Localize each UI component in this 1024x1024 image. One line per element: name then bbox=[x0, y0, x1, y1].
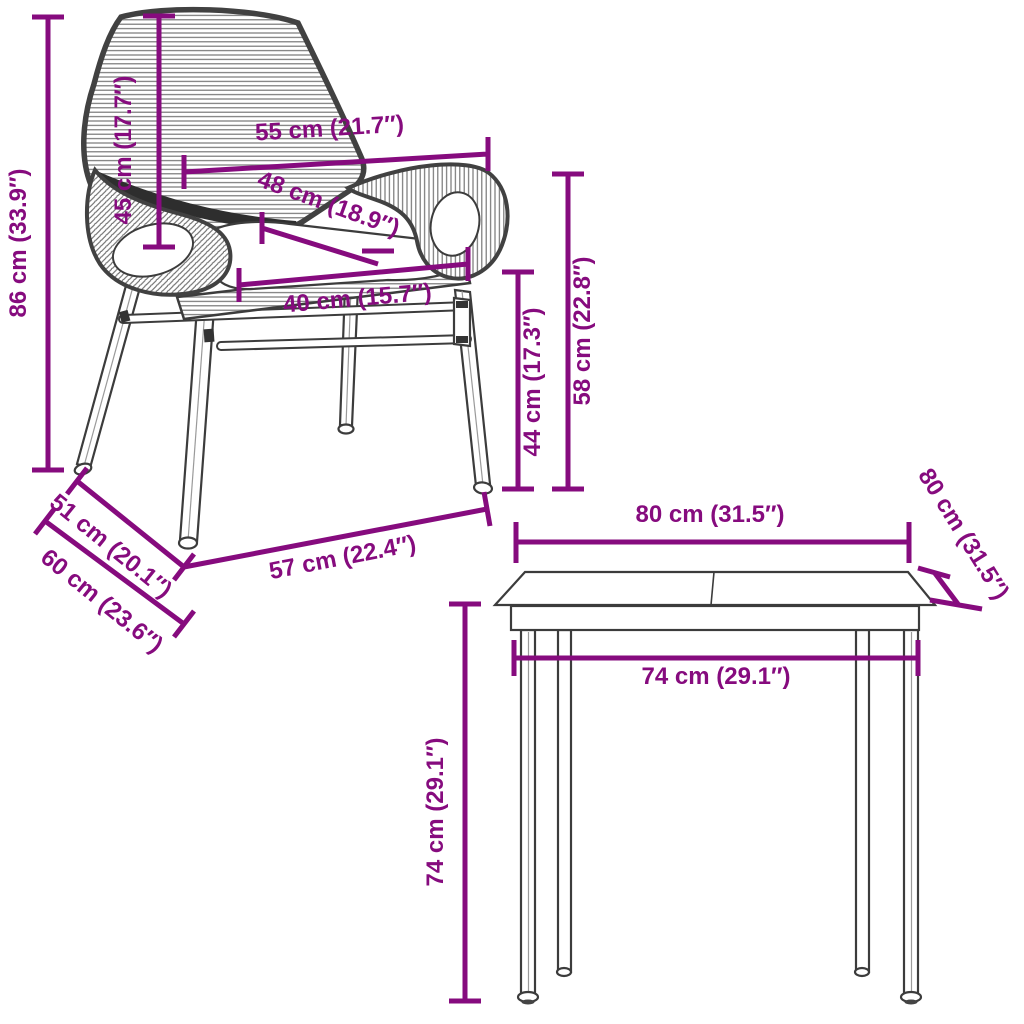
dim-chair-armrest-height-label: 58 cm (22.8″) bbox=[569, 257, 596, 406]
dim-chair-armrest-height: 58 cm (22.8″) bbox=[552, 174, 596, 489]
chair-foot bbox=[339, 425, 354, 434]
dim-table-top-width-label: 80 cm (31.5″) bbox=[636, 501, 785, 528]
dim-chair-total-height: 86 cm (33.9″) bbox=[5, 17, 64, 470]
furniture-dimension-diagram: 86 cm (33.9″) 45 cm (17.7″) 55 cm (21.7″… bbox=[0, 0, 1024, 1024]
dim-table-top-depth-label: 80 cm (31.5″) bbox=[912, 464, 1014, 605]
table-apron bbox=[511, 606, 919, 630]
dim-table-height-label: 74 cm (29.1″) bbox=[422, 738, 449, 887]
table-leg-back-right bbox=[856, 630, 869, 972]
table-drawing bbox=[495, 572, 935, 1005]
dim-chair-backrest-height-label: 45 cm (17.7″) bbox=[110, 76, 137, 225]
dim-chair-seat-height-label: 44 cm (17.3″) bbox=[519, 308, 546, 457]
table-foot bbox=[855, 968, 869, 976]
table-leg-back-left bbox=[558, 630, 571, 972]
chair-foot bbox=[179, 538, 197, 549]
dim-table-frame-width-label: 74 cm (29.1″) bbox=[642, 663, 791, 690]
dim-chair-seat-height: 44 cm (17.3″) bbox=[502, 272, 546, 489]
dim-table-top-depth: 80 cm (31.5″) bbox=[912, 464, 1014, 609]
table-top bbox=[495, 572, 935, 605]
dim-chair-base-width: 57 cm (22.4″) bbox=[184, 492, 490, 585]
diagram-canvas: 86 cm (33.9″) 45 cm (17.7″) 55 cm (21.7″… bbox=[0, 0, 1024, 1024]
dim-table-top-width: 80 cm (31.5″) bbox=[516, 501, 909, 563]
table-foot bbox=[557, 968, 571, 976]
dim-chair-total-height-label: 86 cm (33.9″) bbox=[5, 169, 32, 318]
dim-table-height: 74 cm (29.1″) bbox=[422, 604, 481, 1001]
